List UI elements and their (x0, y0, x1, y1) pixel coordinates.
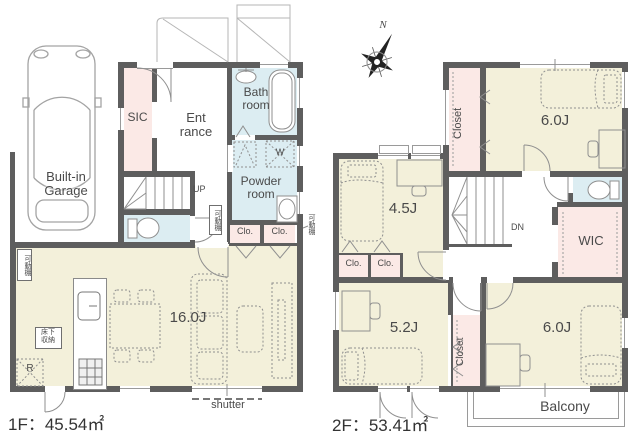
powder-door-opening (227, 145, 233, 172)
wall (448, 283, 453, 315)
window (260, 62, 288, 68)
window (333, 292, 339, 330)
car-top-view (23, 46, 101, 230)
wall (255, 135, 297, 140)
shelf-label-hall: 可動棚 (209, 205, 222, 235)
wall (449, 171, 522, 177)
dn-label: DN (511, 223, 535, 233)
wic-opening (552, 225, 558, 262)
up-label: UP (193, 185, 215, 195)
window (622, 318, 628, 348)
wall (227, 62, 232, 145)
room-toilet-2f (573, 177, 622, 202)
back-door-opening (45, 386, 65, 392)
wall (10, 242, 195, 248)
wic-label: WIC (570, 234, 612, 248)
room-toilet-1f (123, 215, 190, 242)
window (443, 90, 449, 145)
window (297, 146, 303, 166)
casement-leaf (412, 145, 441, 154)
compass-icon (353, 25, 408, 86)
shutter-label: shutter (204, 400, 252, 412)
canopy-outline (157, 5, 290, 62)
floor1-area-label: 1F：45.54㎡ (8, 416, 138, 434)
wall (229, 243, 297, 246)
powder-label: Powder room (232, 175, 290, 201)
clo-label-2f-b: Clo. (371, 259, 400, 269)
wall (449, 244, 512, 247)
room52-size-label: 5.2J (380, 320, 428, 336)
entrance-label: Ent rance (168, 111, 224, 139)
wall (400, 255, 403, 278)
balcony-label: Balcony (510, 399, 620, 414)
shelf-label-ldk: 可動棚 (17, 249, 32, 281)
window (378, 386, 407, 392)
room6a-size-label: 6.0J (532, 113, 578, 129)
room-ldk (15, 245, 297, 387)
room6a-door-opening (522, 171, 550, 177)
ldk-size-label: 16.0J (158, 310, 218, 326)
closet-top-label: Closet (452, 92, 478, 154)
wall (190, 240, 195, 248)
wall-garage-stub (10, 152, 15, 247)
wall (513, 277, 628, 283)
closet-low-label: Closet (455, 326, 479, 378)
wall (550, 171, 628, 177)
sic-label: SIC (122, 111, 153, 124)
entrance-door-opening (137, 62, 173, 69)
wall (190, 177, 195, 216)
wall (552, 207, 558, 225)
wall (231, 135, 235, 140)
shelf-label-right: 可動棚 (308, 214, 315, 235)
toilet-2f-door-opening (568, 177, 573, 193)
underfloor-label: 床下 収納 (36, 329, 60, 345)
clo-label-1f-b: Clo. (264, 227, 295, 237)
stairs-2f (452, 177, 503, 244)
stairs-1f (124, 177, 182, 209)
garage-label: Built-in Garage (26, 170, 106, 198)
toilet-1f-door-opening (190, 216, 195, 240)
window (410, 386, 439, 392)
window (297, 192, 303, 214)
vestibule-opening (453, 277, 481, 283)
room45-size-label: 4.5J (380, 201, 426, 217)
wall (451, 315, 453, 386)
fridge-label: R (22, 364, 38, 375)
washer-label: W (272, 148, 288, 158)
wall (480, 283, 486, 386)
compass-north-label: N (372, 20, 394, 32)
bathroom-label: Bath room (234, 86, 278, 112)
room6b-door-opening (487, 277, 513, 283)
window (297, 78, 303, 108)
room45-door-opening (443, 250, 449, 280)
window (520, 62, 590, 68)
wall (118, 209, 195, 215)
wall (227, 220, 303, 225)
wall (480, 68, 486, 177)
kitchen-counter (73, 278, 107, 390)
wall (152, 138, 157, 177)
floorplan-canvas: Built-in Garage SIC Ent rance Bath room … (0, 0, 640, 442)
window (120, 386, 150, 392)
wall (333, 277, 453, 283)
wall (297, 62, 303, 392)
wall (568, 193, 573, 207)
floor2-area-label: 2F：53.41㎡ (332, 417, 472, 435)
wall (443, 158, 449, 250)
ldk-door-opening (196, 242, 228, 248)
room6b-size-label: 6.0J (532, 320, 582, 336)
window (622, 72, 628, 108)
wall (118, 62, 124, 246)
window-shutter (192, 386, 262, 392)
casement-leaf (379, 145, 409, 154)
wall (10, 242, 16, 392)
clo-label-2f-a: Clo. (339, 259, 368, 269)
clo-label-1f-a: Clo. (230, 227, 260, 237)
